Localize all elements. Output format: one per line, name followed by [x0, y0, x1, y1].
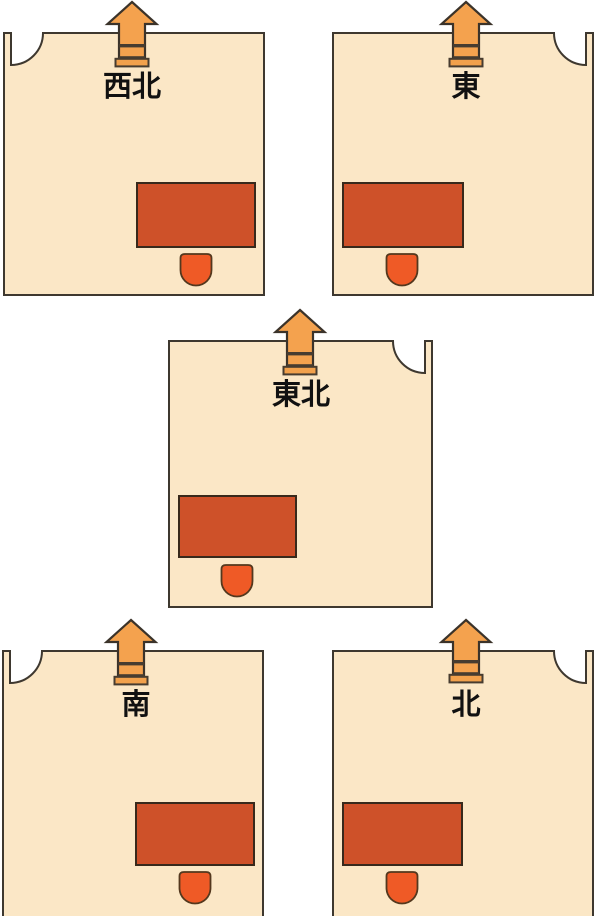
desk	[343, 183, 463, 247]
chair	[181, 254, 212, 285]
floor-plan-diagram: 西北 東 東北 南	[0, 0, 600, 916]
chair	[222, 565, 253, 596]
threshold-line-upper	[287, 352, 313, 355]
direction-label: 東北	[272, 378, 330, 411]
threshold-line-upper	[453, 660, 479, 663]
door-sill	[284, 367, 317, 375]
room-south: 南	[3, 620, 263, 916]
room-north: 北	[333, 620, 593, 916]
desk	[136, 803, 254, 865]
room-northeast: 東北	[169, 310, 432, 607]
direction-label: 北	[451, 688, 480, 721]
door-sill	[116, 59, 149, 67]
door-sill	[450, 675, 483, 683]
door-sill	[115, 677, 148, 685]
desk	[179, 496, 296, 557]
diagram-canvas: 西北 東 東北 南	[0, 0, 600, 916]
room-northwest: 西北	[4, 2, 264, 295]
direction-label: 西北	[103, 70, 161, 103]
threshold-line-upper	[453, 44, 479, 47]
desk	[343, 803, 462, 865]
direction-label: 南	[121, 688, 150, 721]
chair	[387, 872, 418, 904]
threshold-line-upper	[119, 44, 145, 47]
threshold-line-upper	[118, 662, 144, 665]
desk	[137, 183, 255, 247]
direction-label: 東	[451, 70, 480, 103]
door-sill	[450, 59, 483, 67]
chair	[387, 254, 418, 285]
room-east: 東	[333, 2, 593, 295]
chair	[180, 872, 211, 904]
